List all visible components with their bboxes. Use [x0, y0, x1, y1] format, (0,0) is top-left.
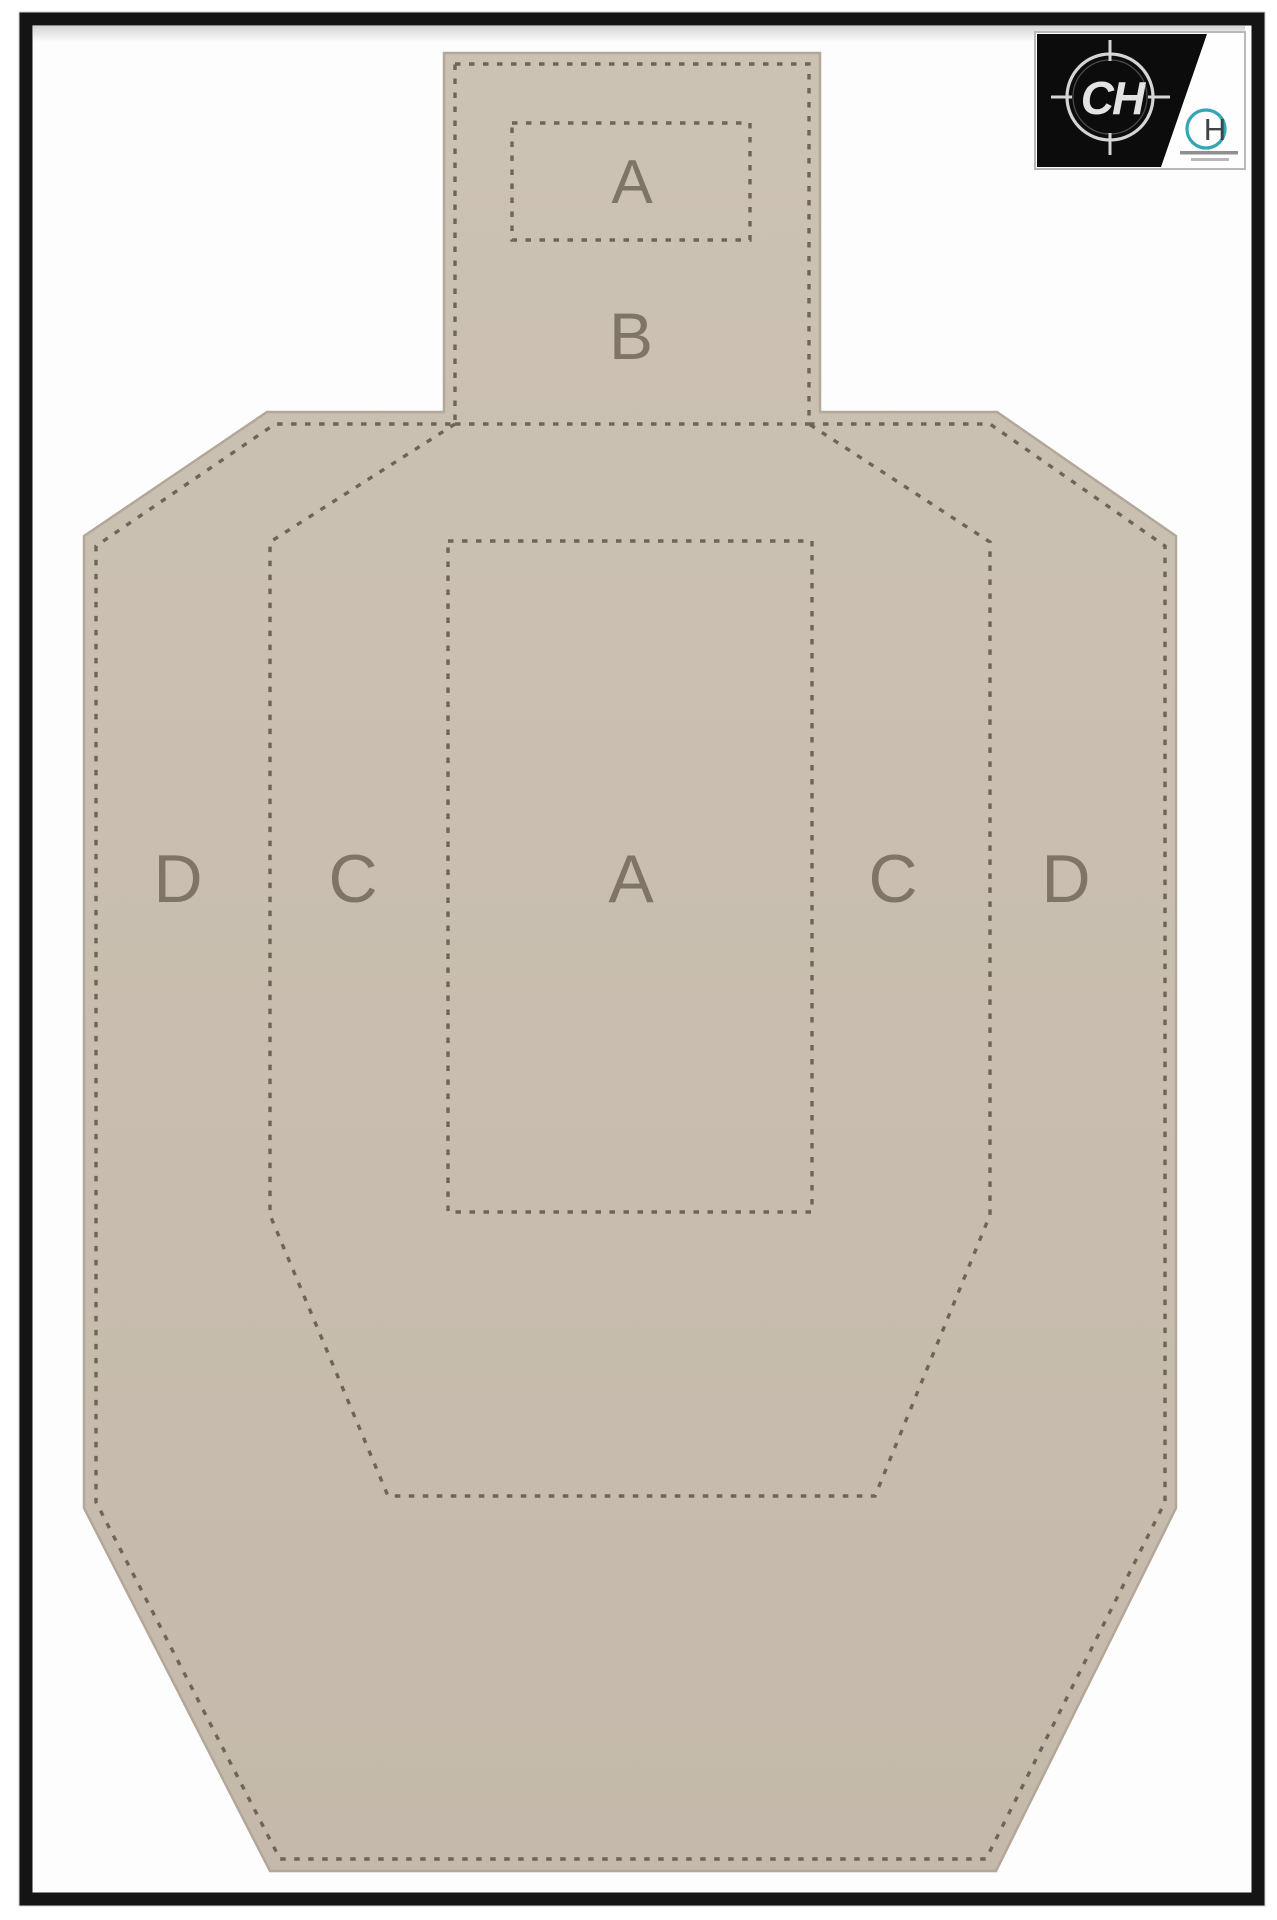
head-b-zone-label: B: [609, 299, 653, 373]
logo-microtext-line: [1191, 158, 1229, 161]
body-d-zone-label-right: D: [1041, 841, 1090, 917]
logo-microtext-line: [1180, 151, 1238, 155]
photo-canvas: A B D C A C D CH H: [0, 0, 1277, 1920]
body-c-zone-label-right: C: [868, 841, 917, 917]
body-c-zone-label-left: C: [328, 841, 377, 917]
brand-logo: CH H: [1035, 32, 1245, 169]
head-a-zone-label: A: [611, 148, 653, 217]
logo-submark-text: H: [1204, 112, 1226, 147]
logo-monogram-text: CH: [1081, 72, 1146, 124]
body-a-zone-label: A: [608, 841, 654, 917]
target-illustration: A B D C A C D CH H: [0, 0, 1277, 1920]
body-d-zone-label-left: D: [153, 841, 202, 917]
